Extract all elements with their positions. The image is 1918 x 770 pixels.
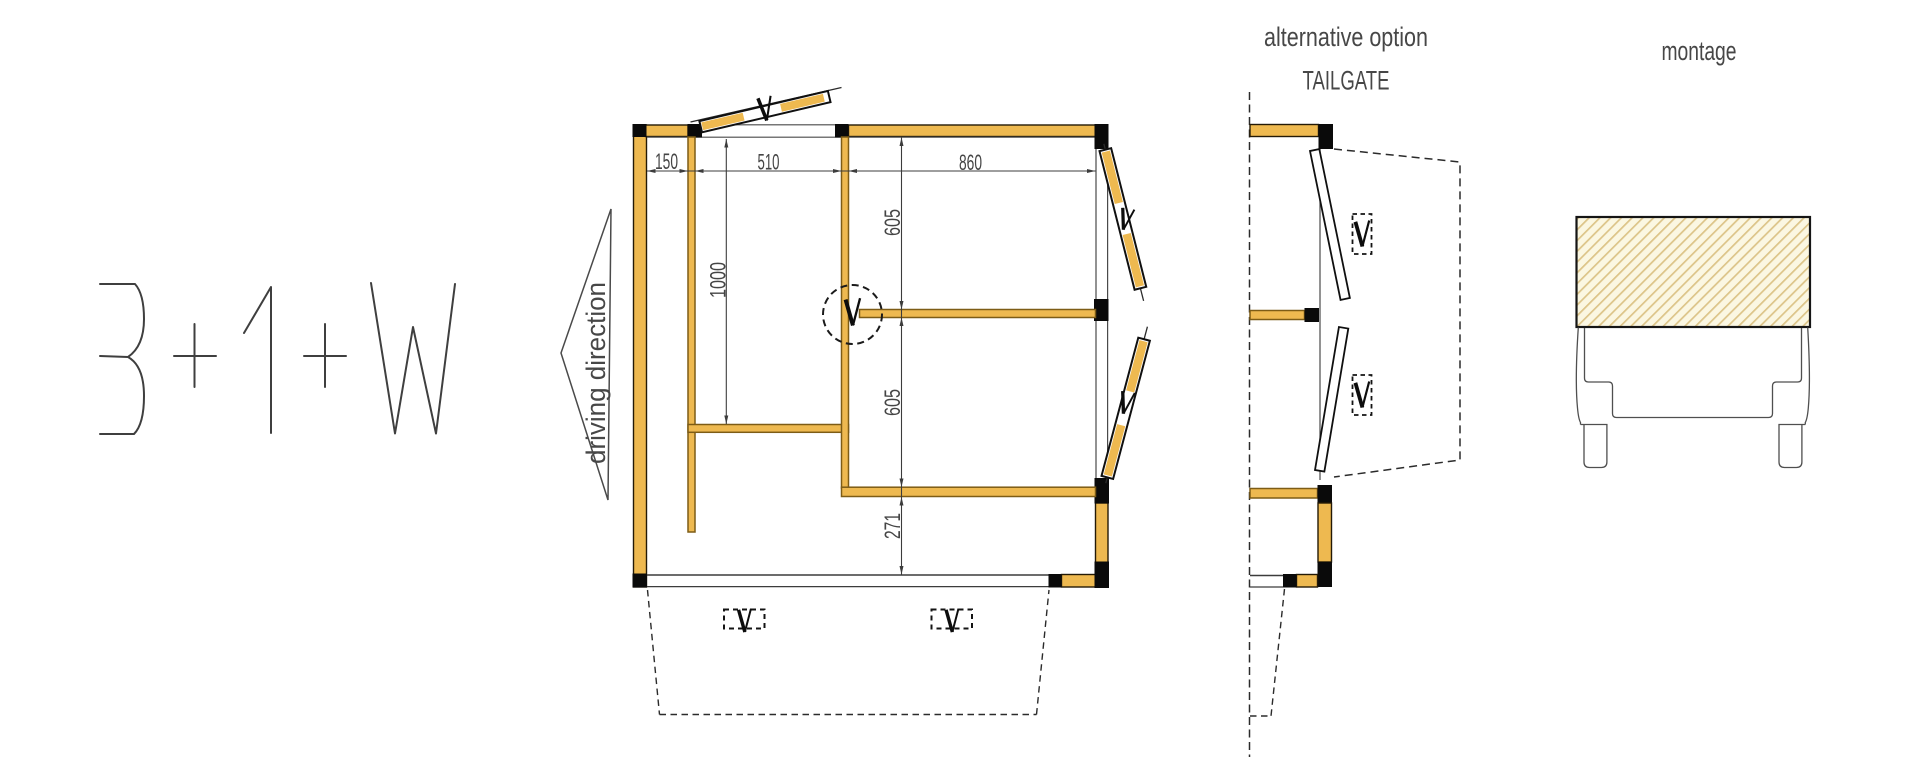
svg-text:510: 510 bbox=[758, 150, 780, 175]
svg-text:1000: 1000 bbox=[706, 262, 731, 298]
svg-text:alternative option: alternative option bbox=[1264, 22, 1428, 52]
svg-text:605: 605 bbox=[880, 389, 905, 416]
svg-text:271: 271 bbox=[880, 513, 905, 539]
svg-text:driving direction: driving direction bbox=[581, 282, 611, 464]
svg-text:montage: montage bbox=[1662, 36, 1737, 66]
svg-text:TAILGATE: TAILGATE bbox=[1303, 66, 1390, 96]
svg-text:605: 605 bbox=[880, 209, 905, 236]
svg-text:150: 150 bbox=[655, 149, 678, 174]
svg-text:860: 860 bbox=[959, 150, 982, 175]
